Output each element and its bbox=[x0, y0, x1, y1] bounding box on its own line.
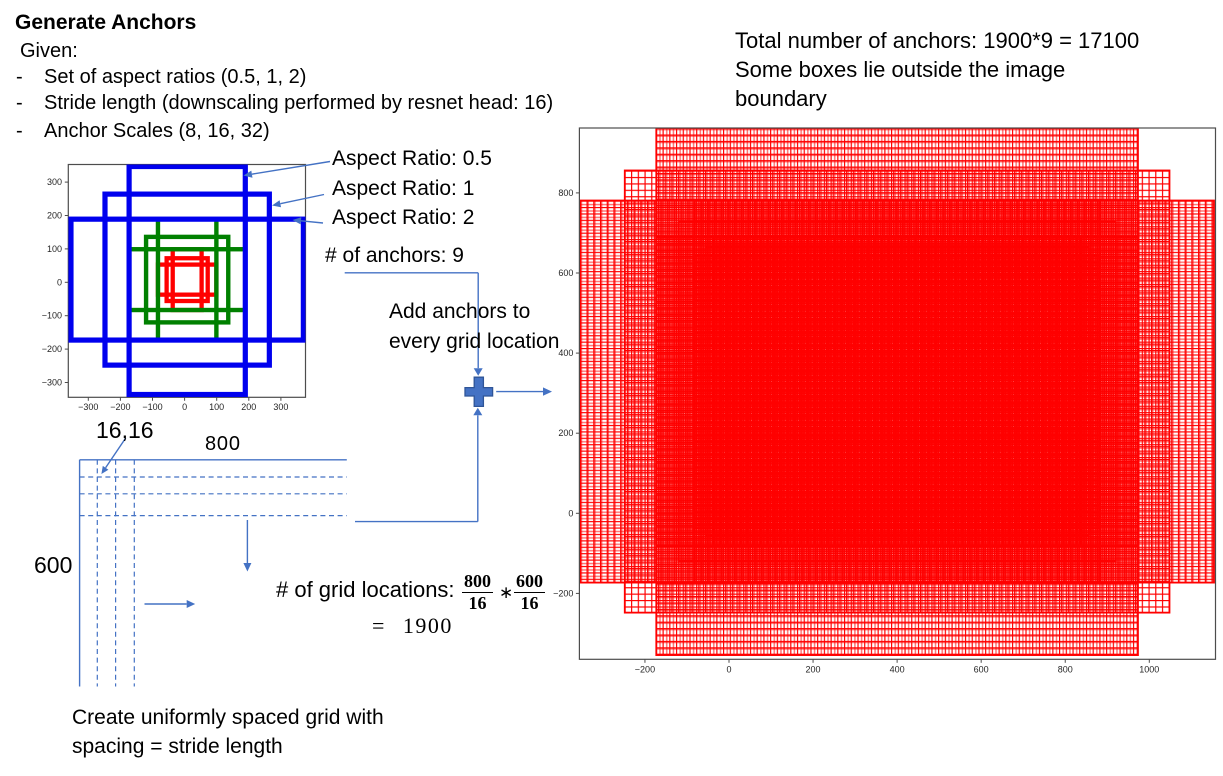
svg-text:−200: −200 bbox=[635, 664, 655, 674]
svg-text:−200: −200 bbox=[553, 588, 573, 598]
svg-text:200: 200 bbox=[558, 428, 573, 438]
svg-text:300: 300 bbox=[273, 402, 288, 412]
svg-text:100: 100 bbox=[209, 402, 224, 412]
svg-text:−200: −200 bbox=[42, 344, 62, 354]
svg-text:−100: −100 bbox=[42, 311, 62, 321]
svg-text:0: 0 bbox=[182, 402, 187, 412]
svg-text:800: 800 bbox=[558, 188, 573, 198]
svg-text:0: 0 bbox=[568, 508, 573, 518]
svg-text:0: 0 bbox=[726, 664, 731, 674]
svg-text:200: 200 bbox=[241, 402, 256, 412]
svg-text:100: 100 bbox=[47, 244, 62, 254]
svg-text:−300: −300 bbox=[78, 402, 98, 412]
svg-text:800: 800 bbox=[1058, 664, 1073, 674]
svg-text:400: 400 bbox=[890, 664, 905, 674]
svg-text:0: 0 bbox=[57, 277, 62, 287]
svg-text:−100: −100 bbox=[142, 402, 162, 412]
svg-text:200: 200 bbox=[47, 211, 62, 221]
svg-text:−300: −300 bbox=[42, 378, 62, 388]
svg-text:600: 600 bbox=[558, 268, 573, 278]
svg-text:200: 200 bbox=[806, 664, 821, 674]
svg-text:1000: 1000 bbox=[1139, 664, 1159, 674]
svg-text:600: 600 bbox=[974, 664, 989, 674]
svg-text:−200: −200 bbox=[110, 402, 130, 412]
svg-text:300: 300 bbox=[47, 177, 62, 187]
svg-text:400: 400 bbox=[558, 348, 573, 358]
